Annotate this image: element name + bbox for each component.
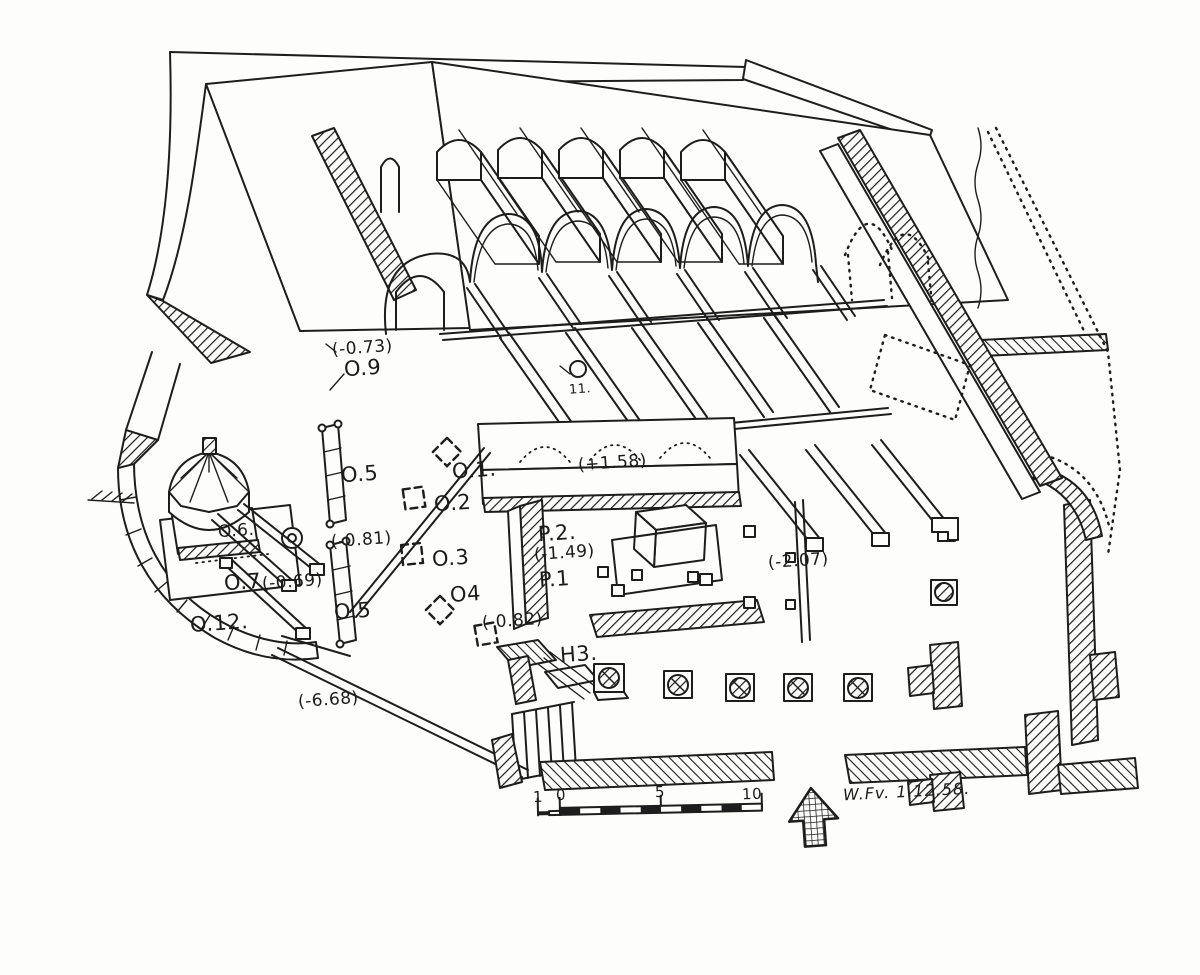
scale-label-1: 1	[533, 788, 544, 806]
column-base	[931, 580, 957, 605]
column-base	[726, 674, 754, 701]
point-label-o9: O.9	[343, 355, 382, 382]
point-label-o3: O.3	[431, 545, 470, 572]
north-arrow-icon	[787, 786, 840, 847]
point-label-p1: P.1	[538, 566, 571, 592]
axonometric-drawing	[0, 0, 1200, 975]
elevation-label-149: (-1.49)	[533, 541, 595, 565]
elevation-label-207: (-2.07)	[767, 549, 829, 573]
point-label-o12: O.12.	[189, 609, 249, 637]
point-label-o6: O.6.	[217, 520, 255, 542]
scale-label-5: 5	[655, 783, 666, 801]
column-base	[594, 664, 628, 700]
column-base	[844, 674, 872, 701]
point-label-o5-lower: O.5	[333, 598, 372, 625]
point-label-o4: O4	[449, 581, 481, 607]
scale-bar	[538, 794, 762, 816]
scale-label-0: 0	[556, 786, 567, 804]
column-base	[664, 671, 692, 698]
point-label-11: 11.	[569, 381, 592, 398]
scale-label-10: 10	[742, 785, 763, 804]
elevation-label-081: (-0.81)	[330, 528, 392, 552]
point-label-h3: H3.	[559, 641, 598, 668]
point-label-o2: O.2	[433, 490, 472, 517]
scanned-drawing-page: (-0.73) O.9 O.5 O.1. O.2 (-0.81) O.6. O.…	[0, 0, 1200, 975]
point-label-o5-upper: O.5	[340, 461, 379, 488]
dome-kiosk	[169, 438, 260, 560]
elevation-label-069: (-0.69)	[261, 570, 323, 594]
point-label-o1: O.1.	[451, 456, 497, 483]
elevation-label-668: (-6.68)	[297, 688, 359, 712]
column-base	[784, 674, 812, 701]
point-label-o7: O.7	[223, 569, 262, 596]
elevation-label-082: (-0.82)	[481, 609, 543, 633]
